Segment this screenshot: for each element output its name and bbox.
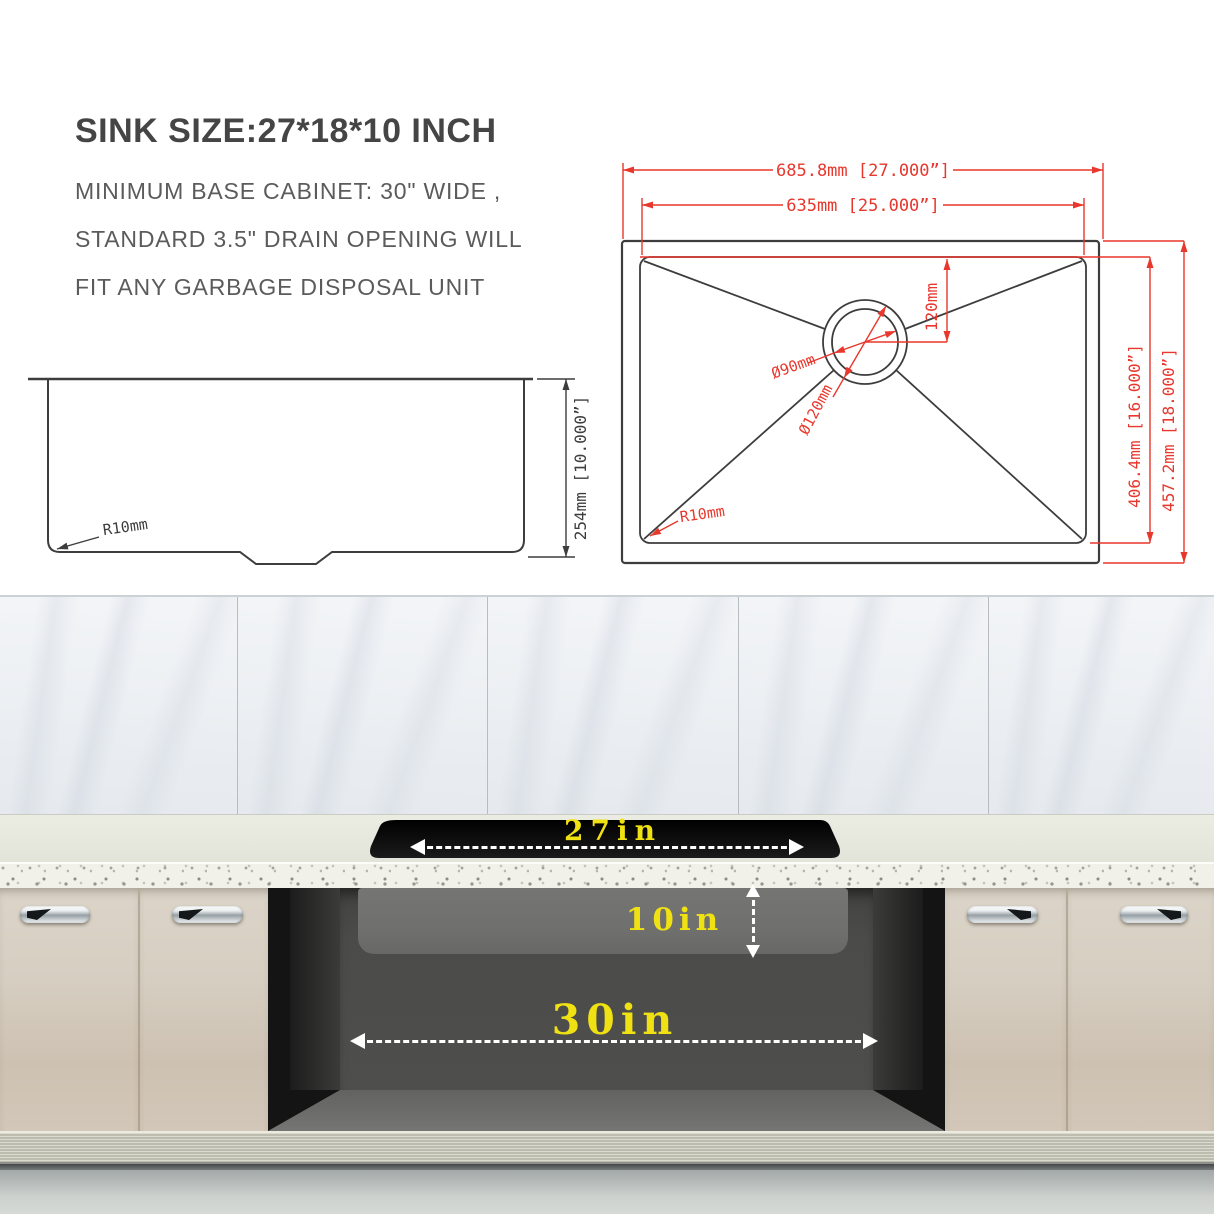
backsplash-tile xyxy=(989,597,1214,814)
dim-bowl-width-label: 635mm [25.000”] xyxy=(786,196,940,216)
backsplash xyxy=(0,595,1214,814)
handle-highlight xyxy=(1157,909,1181,920)
arrow-head-right-icon xyxy=(789,839,812,855)
dim-overall-depth-label: 457.2mm [18.000”] xyxy=(1159,348,1178,512)
opening-right-side-panel xyxy=(873,888,923,1090)
bowl-depth-label: 10in xyxy=(592,902,757,938)
backsplash-tile xyxy=(739,597,989,814)
cabinet-door-3 xyxy=(945,888,1068,1131)
handle-highlight xyxy=(27,909,51,920)
side-corner-radius-label: R10mm xyxy=(102,515,149,539)
cabinet-door-4 xyxy=(1068,888,1214,1131)
opening-left-side-panel xyxy=(290,888,340,1090)
handle-highlight xyxy=(1007,909,1031,920)
page-title: SINK SIZE:27*18*10 INCH xyxy=(75,112,595,151)
plan-view-drawing: 685.8mm [27.000”] 635mm [25.000”] 120mm … xyxy=(590,140,1214,600)
title-block: SINK SIZE:27*18*10 INCH MINIMUM BASE CAB… xyxy=(75,112,595,301)
kitchen-floor xyxy=(0,1170,1214,1214)
arrow-head-left-icon xyxy=(342,1033,365,1049)
arrow-head-right-icon xyxy=(863,1033,886,1049)
sink-top-width-arrow xyxy=(418,846,796,849)
dim-overall-width-label: 685.8mm [27.000”] xyxy=(776,161,950,181)
countertop-front-edge xyxy=(0,862,1214,888)
description-line-1: MINIMUM BASE CABINET: 30" WIDE , xyxy=(75,178,595,205)
cabinet-width-label: 30in xyxy=(495,996,735,1044)
door-handle-icon xyxy=(1120,906,1188,923)
cabinet-width-arrow xyxy=(358,1040,870,1043)
description-line-3: FIT ANY GARBAGE DISPOSAL UNIT xyxy=(75,274,595,301)
kitchen-install-scene: 27in 10in 30in xyxy=(0,595,1214,1214)
backsplash-tile xyxy=(488,597,739,814)
handle-highlight xyxy=(179,909,203,920)
backsplash-tile xyxy=(238,597,488,814)
bowl-depth-arrow xyxy=(752,891,755,951)
cabinet-door-2 xyxy=(140,888,268,1131)
toe-kick-rail xyxy=(0,1131,1214,1164)
backsplash-tile xyxy=(0,597,238,814)
sink-dimension-sheet: SINK SIZE:27*18*10 INCH MINIMUM BASE CAB… xyxy=(0,0,1214,1214)
arrow-head-left-icon xyxy=(402,839,425,855)
door-handle-icon xyxy=(967,906,1038,923)
sink-top-width-label: 27in xyxy=(498,814,728,847)
opening-floor xyxy=(268,1090,945,1131)
side-view-drawing: 254mm [10.000”] R10mm xyxy=(10,355,620,600)
description-line-2: STANDARD 3.5" DRAIN OPENING WILL xyxy=(75,226,595,253)
cabinet-door-1 xyxy=(0,888,140,1131)
dim-height-label: 254mm [10.000”] xyxy=(571,396,590,541)
arrow-head-down-icon xyxy=(746,945,760,965)
arrow-head-up-icon xyxy=(746,877,760,897)
door-handle-icon xyxy=(172,906,243,923)
dim-drain-offset-label: 120mm xyxy=(922,283,941,331)
door-handle-icon xyxy=(20,906,90,923)
dim-bowl-depth-label: 406.4mm [16.000”] xyxy=(1125,344,1144,508)
